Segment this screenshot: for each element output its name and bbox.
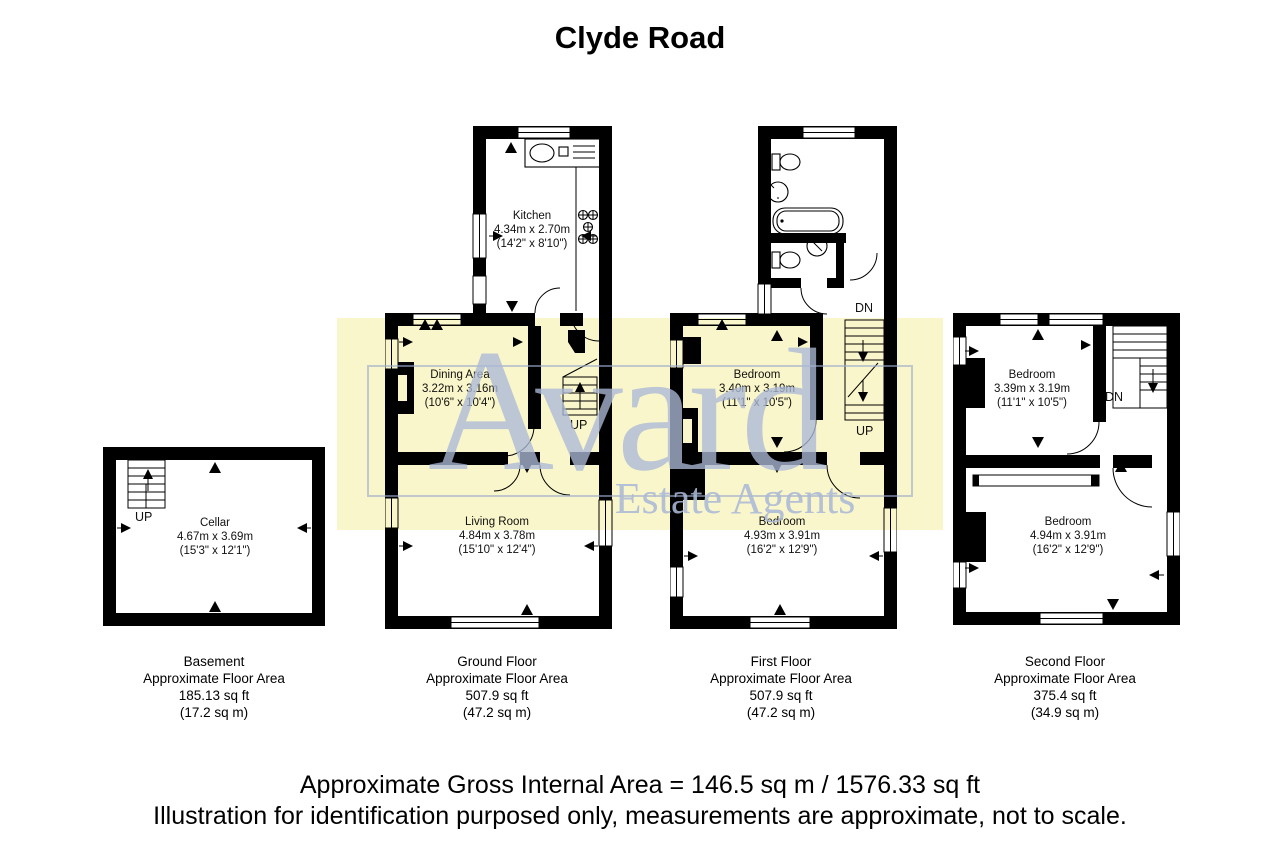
caption-area-label: Approximate Floor Area	[994, 670, 1136, 687]
caption-area-label: Approximate Floor Area	[426, 670, 568, 687]
room-metric: 4.84m x 3.78m	[458, 529, 535, 543]
caption-basement: Basement Approximate Floor Area 185.13 s…	[143, 653, 285, 721]
caption-area-ft: 507.9 sq ft	[426, 687, 568, 704]
caption-floor-name: First Floor	[710, 653, 852, 670]
kitchen-sink	[525, 139, 600, 167]
second-floorplan	[953, 313, 1180, 625]
caption-area-ft: 375.4 sq ft	[994, 687, 1136, 704]
room-metric: 4.94m x 3.91m	[1030, 529, 1106, 543]
room-imperial: (14'2" x 8'10")	[494, 237, 570, 251]
room-metric: 4.93m x 3.91m	[744, 529, 820, 543]
caption-area-m: (47.2 sq m)	[426, 704, 568, 721]
room-label-second-bedroom1: Bedroom 3.39m x 3.19m (11'1" x 10'5")	[994, 368, 1070, 410]
room-imperial: (16'2" x 12'9")	[1030, 543, 1106, 557]
disclaimer: Illustration for identification purposed…	[0, 801, 1280, 832]
caption-area-ft: 507.9 sq ft	[710, 687, 852, 704]
room-label-kitchen: Kitchen 4.34m x 2.70m (14'2" x 8'10")	[494, 209, 570, 251]
page-title: Clyde Road	[0, 20, 1280, 56]
room-metric: 3.39m x 3.19m	[994, 382, 1070, 396]
caption-area-label: Approximate Floor Area	[143, 670, 285, 687]
wc-toilet-icon	[772, 252, 800, 268]
stairs-dn-label-second: DN	[1105, 390, 1123, 404]
room-name: Kitchen	[494, 209, 570, 223]
floorplan-page: Clyde Road	[0, 0, 1280, 853]
toilet-icon	[772, 154, 800, 170]
room-metric: 4.34m x 2.70m	[494, 223, 570, 237]
second-walls	[953, 313, 1180, 625]
caption-area-m: (47.2 sq m)	[710, 704, 852, 721]
gross-internal-area: Approximate Gross Internal Area = 146.5 …	[0, 770, 1280, 801]
caption-area-m: (34.9 sq m)	[994, 704, 1136, 721]
room-label-second-bedroom2: Bedroom 4.94m x 3.91m (16'2" x 12'9")	[1030, 515, 1106, 557]
footer-notes: Approximate Gross Internal Area = 146.5 …	[0, 770, 1280, 832]
watermark-subtitle: Estate Agents	[560, 473, 910, 524]
caption-area-ft: 185.13 sq ft	[143, 687, 285, 704]
room-metric: 4.67m x 3.69m	[177, 530, 253, 544]
bathtub-icon	[773, 208, 843, 234]
caption-area-m: (17.2 sq m)	[143, 704, 285, 721]
caption-floor-name: Ground Floor	[426, 653, 568, 670]
stairs-dn-label-first: DN	[855, 301, 873, 315]
caption-floor-name: Second Floor	[994, 653, 1136, 670]
watermark-logo-text: Avard	[330, 324, 920, 496]
room-name: Cellar	[177, 516, 253, 530]
room-name: Bedroom	[1030, 515, 1106, 529]
caption-floor-name: Basement	[143, 653, 285, 670]
stairs-up-label-basement: UP	[135, 510, 152, 524]
room-imperial: (15'10" x 12'4")	[458, 543, 535, 557]
caption-first: First Floor Approximate Floor Area 507.9…	[710, 653, 852, 721]
caption-area-label: Approximate Floor Area	[710, 670, 852, 687]
room-imperial: (16'2" x 12'9")	[744, 543, 820, 557]
second-windows	[953, 314, 1180, 624]
room-imperial: (15'3" x 12'1")	[177, 544, 253, 558]
room-name: Bedroom	[994, 368, 1070, 382]
caption-second: Second Floor Approximate Floor Area 375.…	[994, 653, 1136, 721]
room-label-cellar: Cellar 4.67m x 3.69m (15'3" x 12'1")	[177, 516, 253, 558]
caption-ground: Ground Floor Approximate Floor Area 507.…	[426, 653, 568, 721]
room-imperial: (11'1" x 10'5")	[994, 396, 1070, 410]
